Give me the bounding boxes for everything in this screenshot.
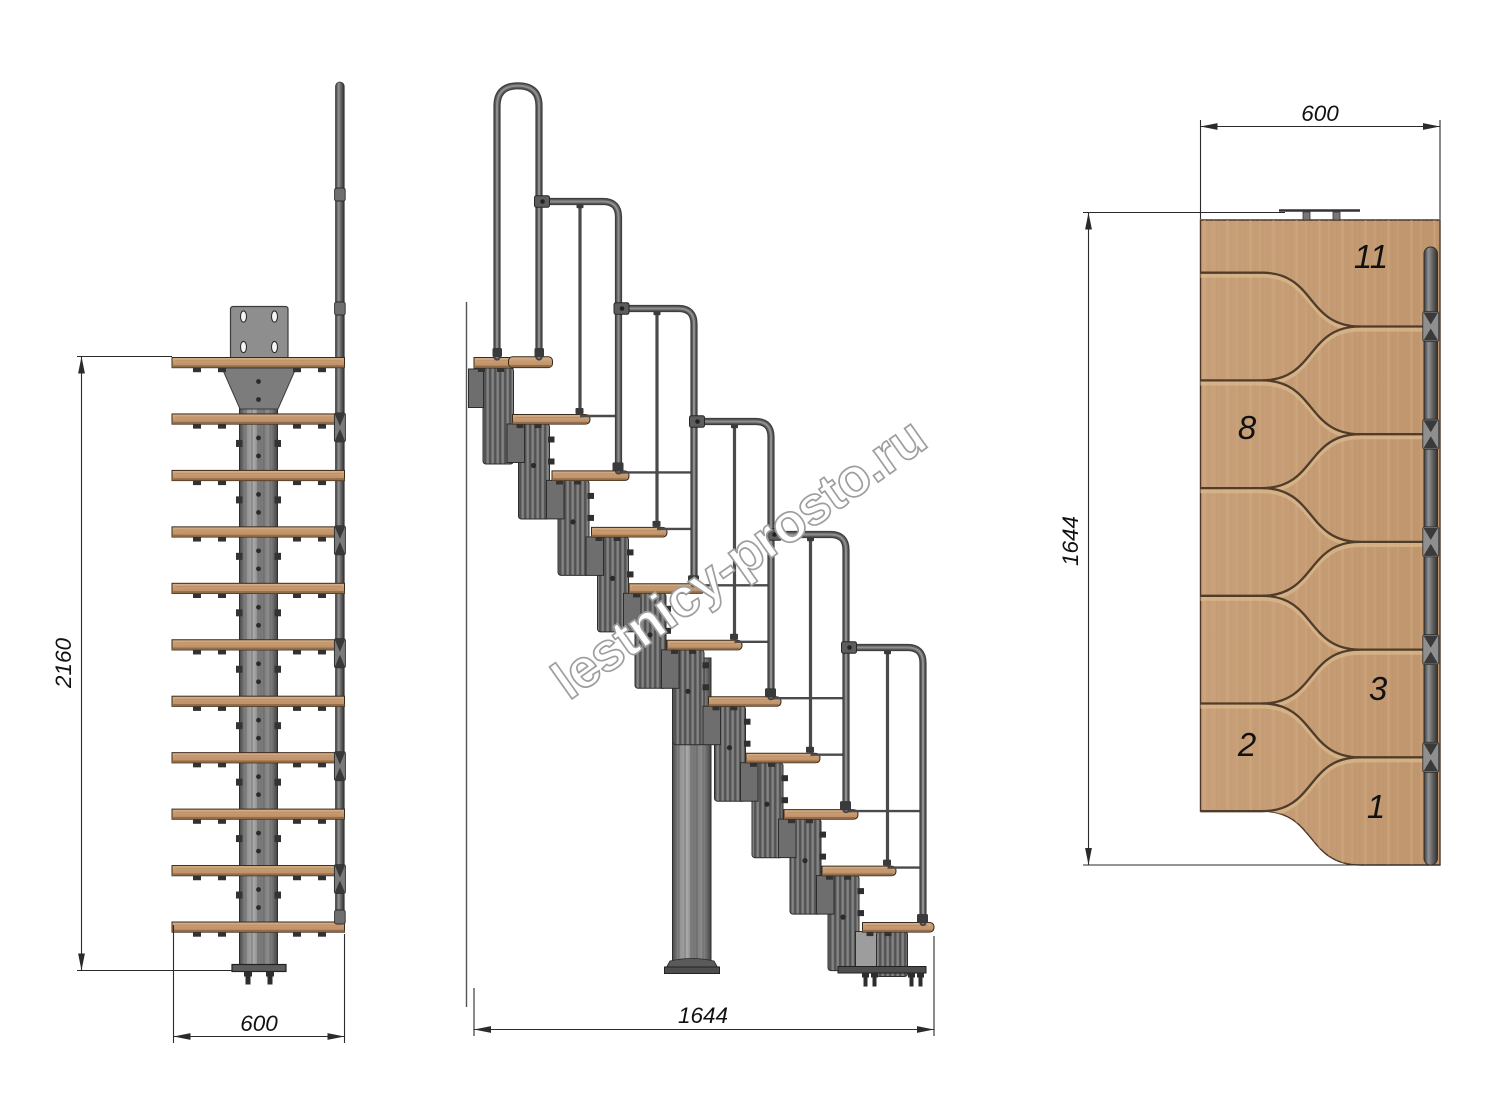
svg-text:1: 1 (1367, 788, 1385, 825)
svg-text:2: 2 (1237, 726, 1256, 763)
svg-text:11: 11 (1354, 238, 1388, 275)
svg-text:600: 600 (240, 1011, 278, 1036)
svg-text:1644: 1644 (678, 1003, 728, 1028)
svg-text:3: 3 (1369, 670, 1388, 707)
svg-text:2160: 2160 (51, 637, 76, 689)
svg-text:1644: 1644 (1058, 516, 1083, 566)
svg-text:8: 8 (1238, 409, 1257, 446)
svg-text:600: 600 (1301, 101, 1339, 126)
